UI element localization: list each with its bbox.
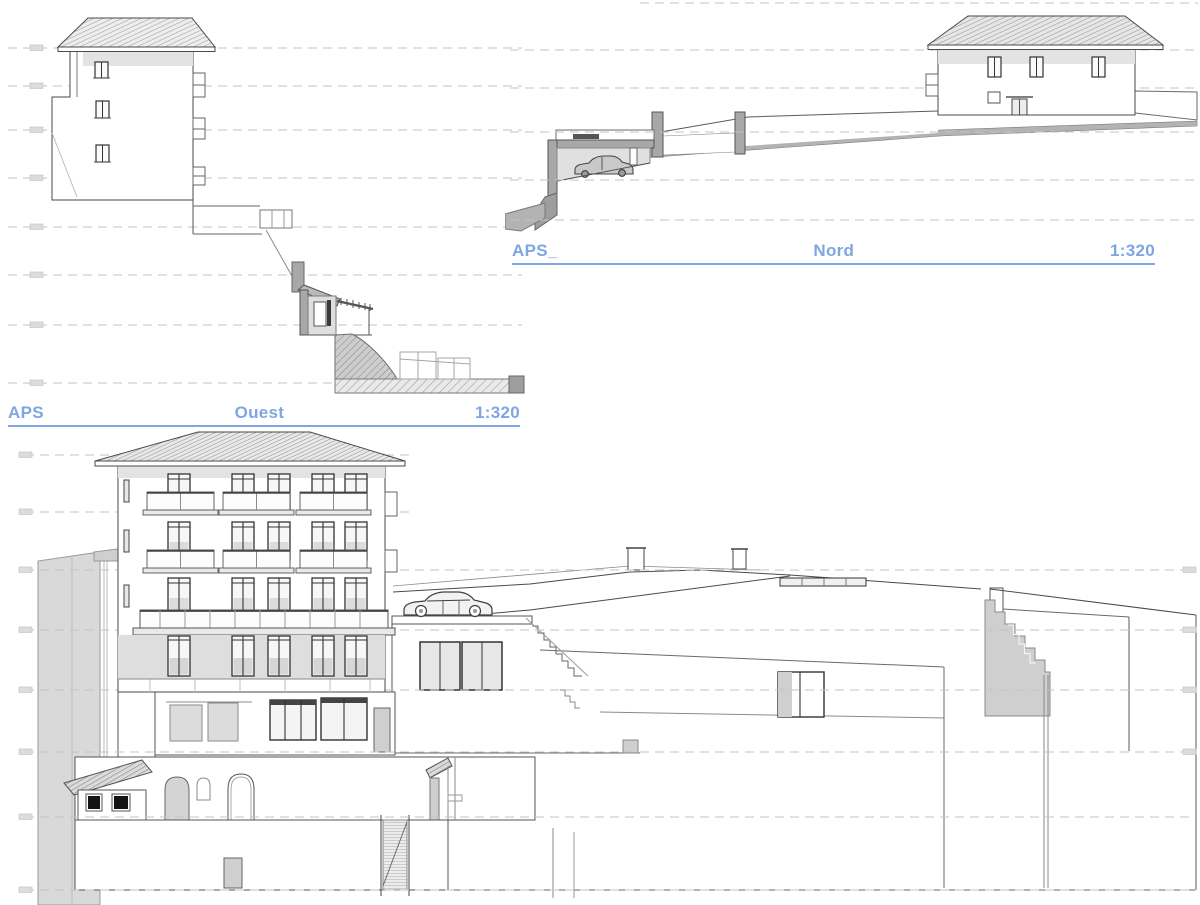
chimney bbox=[628, 548, 644, 570]
small-window bbox=[988, 92, 1000, 103]
rock-strip bbox=[335, 379, 511, 393]
balcony-row-1 bbox=[143, 492, 371, 515]
long-balcony bbox=[133, 610, 395, 635]
main-building bbox=[95, 432, 405, 692]
elevation-sheet: { "sheet": { "background_color": "#fffff… bbox=[0, 0, 1200, 905]
wall-pillar bbox=[735, 112, 745, 154]
nord-elevation-drawing bbox=[505, 0, 1200, 238]
arched-opening bbox=[228, 774, 254, 820]
nord-roof bbox=[928, 16, 1163, 45]
ouest-title-bar: APS Ouest 1:320 bbox=[8, 403, 520, 427]
ouest-side-balconies bbox=[193, 73, 205, 185]
ouest-title-prefix: APS bbox=[8, 403, 44, 423]
ouest-title-scale: 1:320 bbox=[475, 403, 520, 423]
gray-door bbox=[374, 708, 390, 752]
ouest-level-markers bbox=[30, 45, 43, 386]
arched-niche bbox=[197, 778, 210, 800]
slit-windows bbox=[124, 480, 129, 607]
terrace-glass-door bbox=[778, 672, 824, 717]
terrace-slab bbox=[392, 616, 532, 624]
skylight bbox=[780, 578, 866, 586]
nord-title-scale: 1:320 bbox=[1110, 241, 1155, 261]
right-parapet bbox=[1135, 91, 1197, 120]
nord-title-bar: APS_ Nord 1:320 bbox=[512, 241, 1155, 265]
nord-house bbox=[926, 16, 1163, 115]
chimney bbox=[733, 549, 746, 569]
triple-window bbox=[270, 700, 316, 740]
main-elevation-drawing bbox=[0, 428, 1200, 905]
ouest-section-drawing bbox=[0, 0, 530, 400]
ouest-title-name: Ouest bbox=[235, 403, 285, 423]
gate bbox=[224, 858, 242, 888]
ouest-building bbox=[52, 18, 215, 200]
balcony-row-2 bbox=[143, 550, 371, 573]
nord-title-name: Nord bbox=[813, 241, 854, 261]
main-roof bbox=[95, 432, 405, 461]
arched-door bbox=[165, 777, 189, 820]
nord-title-prefix: APS_ bbox=[512, 241, 558, 261]
ouest-terrain bbox=[193, 200, 524, 393]
fence bbox=[400, 352, 470, 379]
ouest-windows bbox=[93, 62, 111, 162]
side-boxes bbox=[385, 492, 397, 572]
car-icon bbox=[404, 592, 492, 617]
earth-mass bbox=[335, 334, 398, 382]
stairs-bottom bbox=[381, 815, 409, 896]
right-massing bbox=[392, 548, 1196, 890]
slider-window bbox=[321, 698, 367, 740]
ouest-roof bbox=[58, 18, 215, 47]
pergola bbox=[337, 298, 373, 335]
